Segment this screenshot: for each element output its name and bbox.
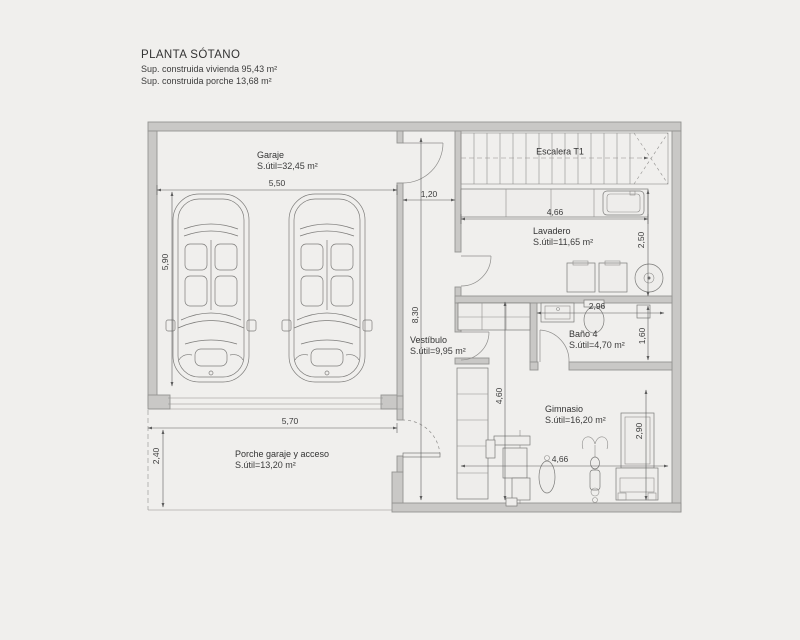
garage-door-arc <box>403 143 443 183</box>
dim-bano-depth: 1,60 <box>637 328 647 345</box>
garage-cars <box>166 194 372 382</box>
room-label-escalera: Escalera T1 <box>536 147 584 158</box>
dim-garaje-depth: 5,90 <box>160 254 170 271</box>
dim-gimnasio-width: 4,66 <box>552 454 569 464</box>
dim-gimnasio-depth: 2,90 <box>634 423 644 440</box>
room-label-porche: Porche garaje y acceso S.útil=13,20 m² <box>235 449 329 471</box>
gym-equipment <box>486 413 658 506</box>
dim-lavadero-depth: 2,50 <box>636 232 646 249</box>
laundry-sink-icon <box>603 191 644 215</box>
dim-pasillo-width: 1,20 <box>421 189 438 199</box>
surface-line-vivienda: Sup. construida vivienda 95,43 m² <box>141 64 277 76</box>
room-label-vestibulo: Vestíbulo S.útil=9,95 m² <box>410 335 466 357</box>
washer-icon <box>567 263 595 292</box>
dim-garaje-width: 5,50 <box>269 178 286 188</box>
room-label-garaje: Garaje S.útil=32,45 m² <box>257 150 318 172</box>
boiler-icon <box>635 264 663 292</box>
exercise-bike-icon <box>582 437 608 503</box>
entry-door-arc <box>403 420 440 457</box>
dim-gimnasio-length: 4,60 <box>494 388 504 405</box>
weight-machine-icon <box>486 430 555 506</box>
title-block: PLANTA SÓTANO Sup. construida vivienda 9… <box>141 49 277 87</box>
dim-lavadero-width: 4,66 <box>547 207 564 217</box>
dim-porche-width: 5,70 <box>282 416 299 426</box>
room-label-lavadero: Lavadero S.útil=11,65 m² <box>533 226 593 248</box>
bath-door-arc <box>540 330 569 362</box>
dim-pasillo-length: 8,30 <box>410 307 420 324</box>
surface-line-porche: Sup. construida porche 13,68 m² <box>141 76 277 88</box>
dryer-icon <box>599 263 627 292</box>
floorplan-canvas: PLANTA SÓTANO Sup. construida vivienda 9… <box>0 0 800 640</box>
laundry-door-arc <box>461 256 491 286</box>
room-label-bano4: Baño 4 S.útil=4,70 m² <box>569 329 625 351</box>
dim-porche-depth: 2,40 <box>151 448 161 465</box>
stairs <box>461 133 668 184</box>
plan-title: PLANTA SÓTANO <box>141 49 277 61</box>
room-label-gimnasio: Gimnasio S.útil=16,20 m² <box>545 404 606 426</box>
floorplan-drawing <box>0 0 800 640</box>
dim-bano-width: 2,96 <box>589 301 606 311</box>
